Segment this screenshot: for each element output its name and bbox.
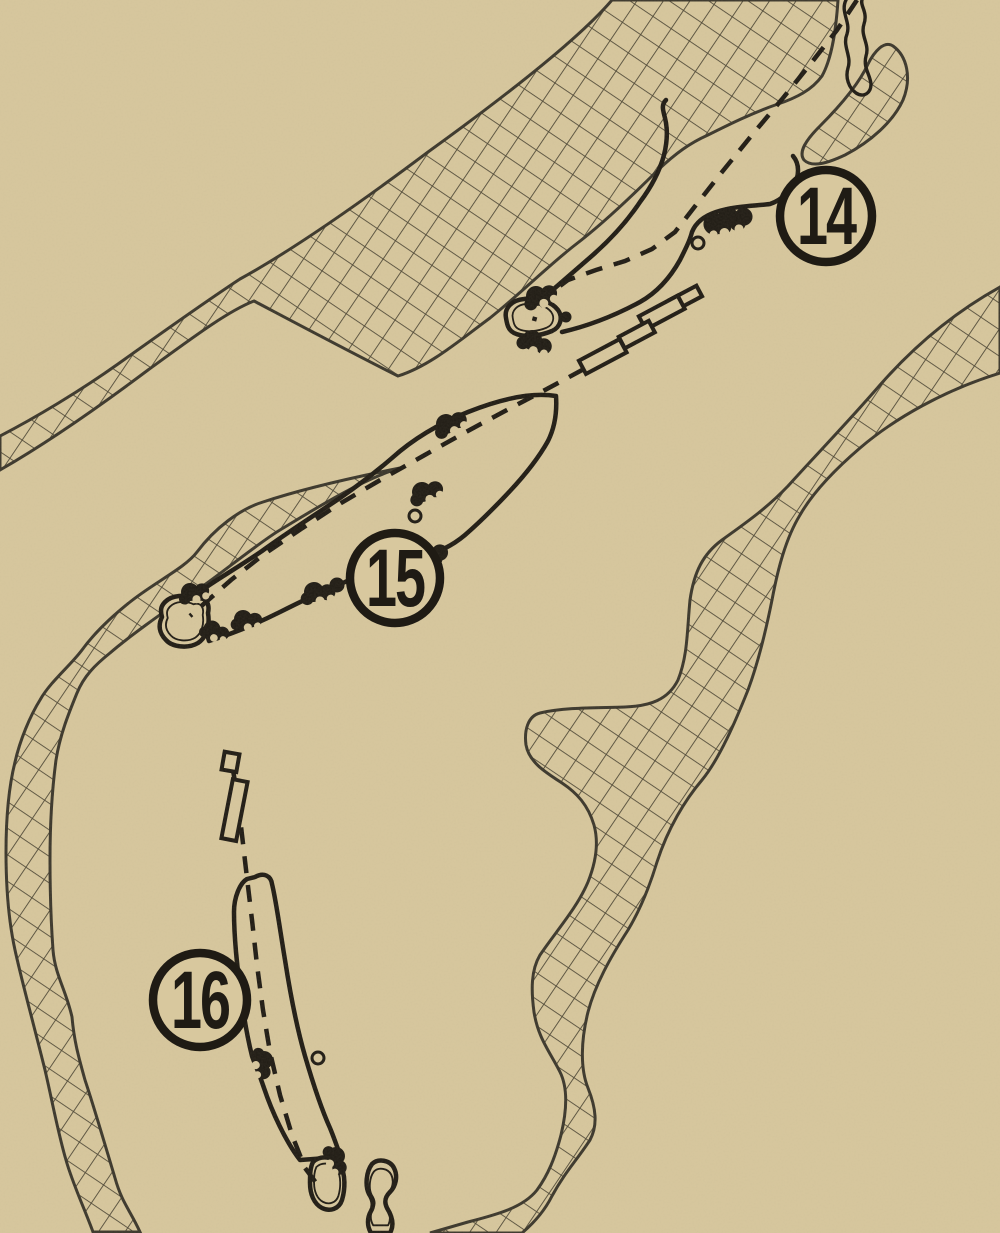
hole-14-number: 14 (797, 170, 857, 261)
hole-marker-14: 14 (780, 170, 872, 262)
course-map-canvas: 14 15 16 (0, 0, 1000, 1233)
hole-15-number: 15 (366, 532, 425, 623)
hole-marker-15: 15 (350, 532, 440, 623)
hole-marker-16: 16 (153, 953, 247, 1047)
hole-16-number: 16 (171, 954, 229, 1045)
course-map-stage: 14 15 16 (0, 0, 1000, 1233)
